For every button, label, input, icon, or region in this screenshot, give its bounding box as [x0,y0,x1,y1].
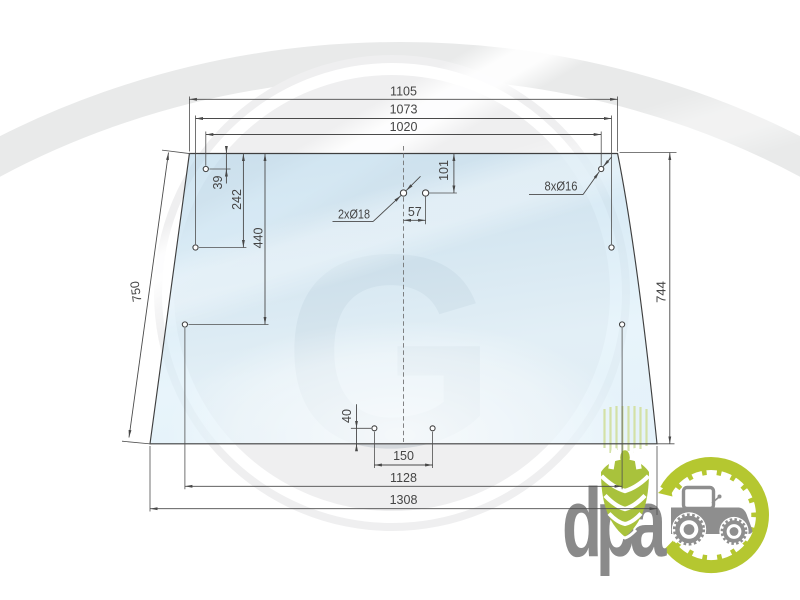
svg-text:1020: 1020 [390,120,418,134]
svg-text:750: 750 [128,280,145,303]
svg-text:1128: 1128 [390,471,417,485]
svg-text:39: 39 [211,176,225,190]
svg-text:1073: 1073 [390,103,418,117]
svg-text:150: 150 [393,449,414,463]
svg-text:57: 57 [408,205,422,219]
svg-text:1105: 1105 [390,84,417,98]
svg-text:440: 440 [251,228,265,249]
svg-text:242: 242 [230,189,244,210]
svg-text:2xØ18: 2xØ18 [338,207,370,221]
svg-text:8xØ16: 8xØ16 [545,179,578,193]
svg-text:101: 101 [437,160,451,181]
svg-text:744: 744 [654,281,669,303]
svg-text:40: 40 [340,409,354,423]
svg-text:1308: 1308 [390,493,418,507]
